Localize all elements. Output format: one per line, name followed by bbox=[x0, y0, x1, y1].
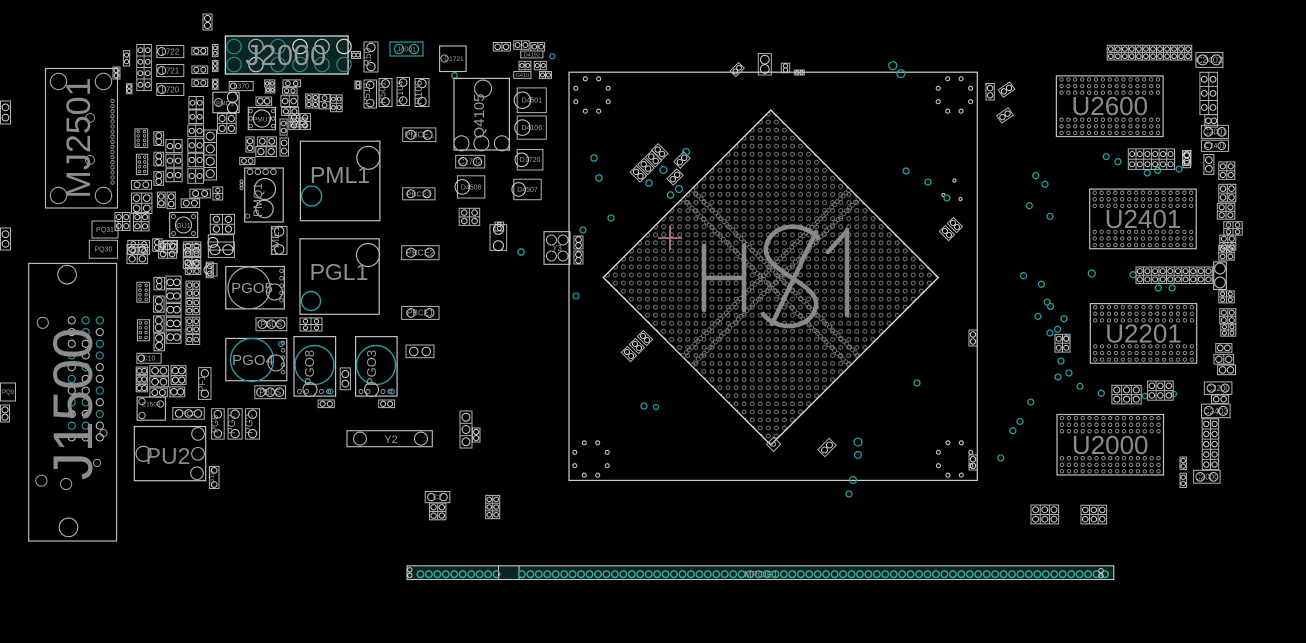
svg-text:PG6: PG6 bbox=[210, 415, 220, 433]
svg-text:G10: G10 bbox=[209, 471, 216, 484]
svg-text:C2: C2 bbox=[433, 495, 442, 502]
svg-text:PBCE3: PBCE3 bbox=[407, 189, 431, 198]
svg-text:L721: L721 bbox=[161, 66, 179, 75]
svg-text:D4106: D4106 bbox=[521, 125, 542, 132]
svg-text:R50: R50 bbox=[363, 47, 374, 66]
svg-text:R510: R510 bbox=[362, 83, 372, 105]
svg-text:D4501: D4501 bbox=[521, 98, 542, 105]
svg-text:PC2: PC2 bbox=[182, 409, 196, 418]
svg-text:PQ9: PQ9 bbox=[2, 390, 15, 396]
svg-text:PGL1: PGL1 bbox=[310, 259, 369, 285]
svg-text:C2000: C2000 bbox=[1195, 473, 1219, 482]
svg-text:J2000: J2000 bbox=[245, 40, 327, 72]
svg-text:PME1: PME1 bbox=[270, 225, 282, 255]
svg-text:G410: G410 bbox=[516, 73, 529, 79]
svg-text:PG2: PG2 bbox=[245, 413, 256, 433]
svg-text:U2401: U2401 bbox=[1105, 204, 1182, 234]
svg-text:PGO5: PGO5 bbox=[231, 280, 273, 297]
svg-text:BMD1: BMD1 bbox=[216, 101, 234, 108]
svg-text:C1702: C1702 bbox=[459, 157, 482, 166]
svg-text:MJ2501: MJ2501 bbox=[60, 78, 98, 199]
svg-text:PG7: PG7 bbox=[227, 413, 238, 434]
svg-text:L722: L722 bbox=[161, 47, 179, 56]
svg-text:J1500: J1500 bbox=[41, 328, 104, 481]
svg-text:U2000: U2000 bbox=[1072, 430, 1149, 460]
svg-text:C10: C10 bbox=[143, 356, 156, 363]
svg-text:PGO3: PGO3 bbox=[364, 350, 379, 386]
svg-text:L370: L370 bbox=[233, 84, 249, 91]
svg-text:PGO8: PGO8 bbox=[302, 350, 317, 386]
svg-text:C2403: C2403 bbox=[1203, 406, 1228, 416]
svg-text:C1503: C1503 bbox=[141, 402, 161, 409]
svg-text:PMU1: PMU1 bbox=[253, 117, 271, 124]
svg-text:PU2: PU2 bbox=[146, 443, 191, 469]
svg-text:C104: C104 bbox=[395, 81, 405, 103]
svg-text:PF1: PF1 bbox=[197, 375, 207, 391]
svg-text:D1721: D1721 bbox=[444, 56, 464, 63]
svg-text:Y2: Y2 bbox=[384, 434, 397, 446]
svg-text:C2200: C2200 bbox=[1207, 384, 1231, 393]
svg-text:D4507: D4507 bbox=[517, 187, 538, 194]
svg-text:PBCE1: PBCE1 bbox=[407, 309, 434, 318]
svg-text:PGO4: PGO4 bbox=[232, 352, 274, 369]
svg-text:PBCE2: PBCE2 bbox=[406, 248, 435, 258]
svg-text:U2201: U2201 bbox=[1105, 318, 1182, 348]
svg-text:R501: R501 bbox=[377, 81, 388, 103]
svg-text:D1720: D1720 bbox=[520, 157, 541, 164]
svg-text:C2001: C2001 bbox=[1203, 128, 1227, 137]
svg-text:R106: R106 bbox=[414, 80, 425, 105]
svg-text:PMQ1: PMQ1 bbox=[251, 183, 265, 217]
svg-text:D4192: D4192 bbox=[524, 52, 540, 58]
svg-text:L720: L720 bbox=[161, 85, 179, 94]
svg-text:PBDS: PBDS bbox=[259, 388, 281, 397]
svg-text:MPCIE1: MPCIE1 bbox=[744, 570, 778, 580]
svg-text:Y3: Y3 bbox=[552, 244, 562, 253]
svg-text:C2402: C2402 bbox=[1196, 55, 1223, 65]
svg-text:Q4105: Q4105 bbox=[471, 93, 488, 138]
svg-text:D4508: D4508 bbox=[461, 184, 482, 191]
svg-text:J4001: J4001 bbox=[397, 47, 416, 54]
svg-text:PMCE1: PMCE1 bbox=[405, 130, 435, 140]
svg-text:PQ31: PQ31 bbox=[96, 227, 114, 234]
svg-text:PML1: PML1 bbox=[310, 162, 370, 188]
svg-text:U2600: U2600 bbox=[1071, 91, 1148, 121]
svg-text:C2401: C2401 bbox=[1205, 143, 1225, 150]
svg-text:PQ30: PQ30 bbox=[94, 247, 112, 254]
svg-text:PBDS: PBDS bbox=[261, 320, 283, 329]
svg-text:GU1: GU1 bbox=[176, 223, 191, 230]
